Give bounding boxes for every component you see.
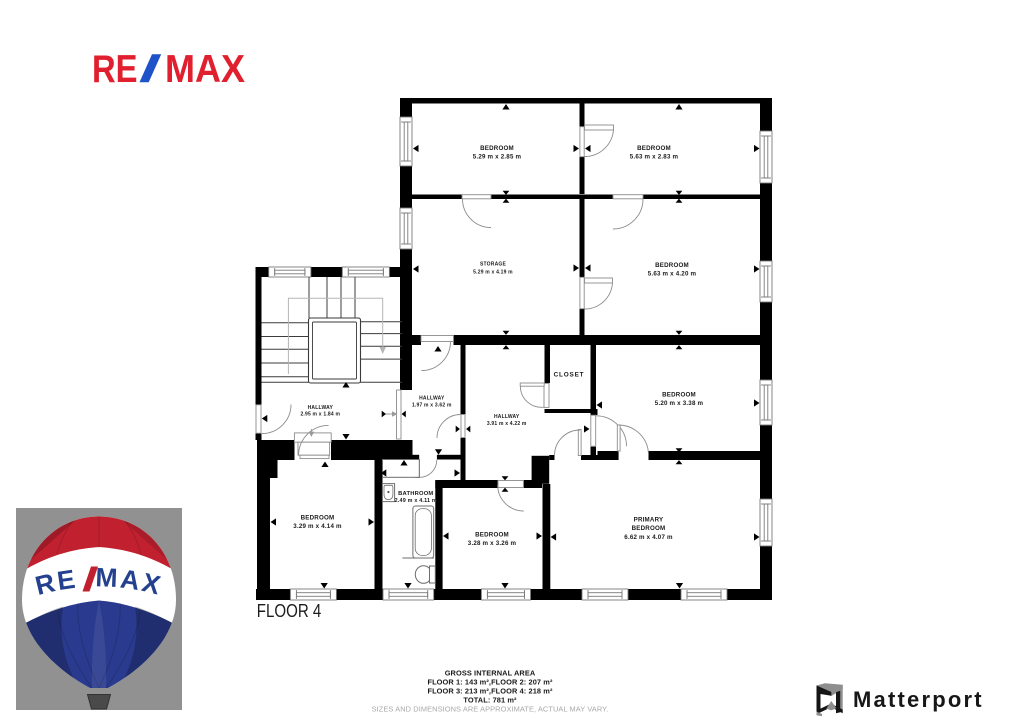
svg-text:HALLWAY: HALLWAY (308, 405, 334, 411)
svg-text:Matterport: Matterport (853, 687, 984, 712)
svg-text:5.29 m x 2.85 m: 5.29 m x 2.85 m (473, 153, 522, 160)
svg-text:3.29 m x 4.14 m: 3.29 m x 4.14 m (293, 523, 342, 530)
svg-text:5.63 m x 2.83 m: 5.63 m x 2.83 m (630, 153, 679, 160)
svg-text:RE: RE (92, 48, 138, 91)
svg-text:3.91 m x 4.22 m: 3.91 m x 4.22 m (487, 421, 527, 427)
svg-text:HALLWAY: HALLWAY (494, 414, 520, 420)
svg-text:TOTAL: 781 m²: TOTAL: 781 m² (463, 696, 517, 705)
svg-text:GROSS INTERNAL AREA: GROSS INTERNAL AREA (445, 669, 536, 678)
svg-text:2.49 m x 4.11 m: 2.49 m x 4.11 m (395, 498, 437, 504)
svg-text:PRIMARY: PRIMARY (634, 517, 664, 524)
svg-text:BEDROOM: BEDROOM (632, 525, 666, 532)
svg-text:BEDROOM: BEDROOM (637, 145, 671, 152)
svg-text:5.20 m x 3.38 m: 5.20 m x 3.38 m (655, 400, 704, 407)
svg-text:1.97 m x 3.62 m: 1.97 m x 3.62 m (412, 402, 452, 408)
svg-text:BATHROOM: BATHROOM (398, 491, 433, 497)
svg-text:CLOSET: CLOSET (554, 372, 585, 379)
svg-text:BEDROOM: BEDROOM (480, 145, 514, 152)
svg-text:MAX: MAX (165, 48, 245, 91)
svg-text:SIZES AND DIMENSIONS ARE APPRO: SIZES AND DIMENSIONS ARE APPROXIMATE, AC… (372, 705, 609, 714)
svg-text:5.29 m x 4.19 m: 5.29 m x 4.19 m (473, 270, 513, 276)
svg-text:FLOOR 3: 213 m²,FLOOR 4: 218 m: FLOOR 3: 213 m²,FLOOR 4: 218 m² (427, 687, 553, 696)
svg-text:STORAGE: STORAGE (480, 262, 506, 268)
svg-text:FLOOR 4: FLOOR 4 (257, 600, 322, 621)
svg-text:5.63 m x 4.20 m: 5.63 m x 4.20 m (648, 270, 697, 277)
svg-text:FLOOR 1: 143 m²,FLOOR 2: 207 m: FLOOR 1: 143 m²,FLOOR 2: 207 m² (427, 678, 553, 687)
svg-text:BEDROOM: BEDROOM (301, 515, 335, 522)
svg-text:BEDROOM: BEDROOM (655, 262, 689, 269)
svg-text:3.28 m x 3.26 m: 3.28 m x 3.26 m (468, 540, 517, 547)
svg-text:6.62 m x 4.07 m: 6.62 m x 4.07 m (624, 534, 673, 541)
svg-text:BEDROOM: BEDROOM (662, 392, 696, 399)
svg-text:HALLWAY: HALLWAY (419, 396, 445, 402)
svg-text:2.95 m x 1.84 m: 2.95 m x 1.84 m (300, 412, 340, 418)
svg-text:BEDROOM: BEDROOM (475, 532, 509, 539)
